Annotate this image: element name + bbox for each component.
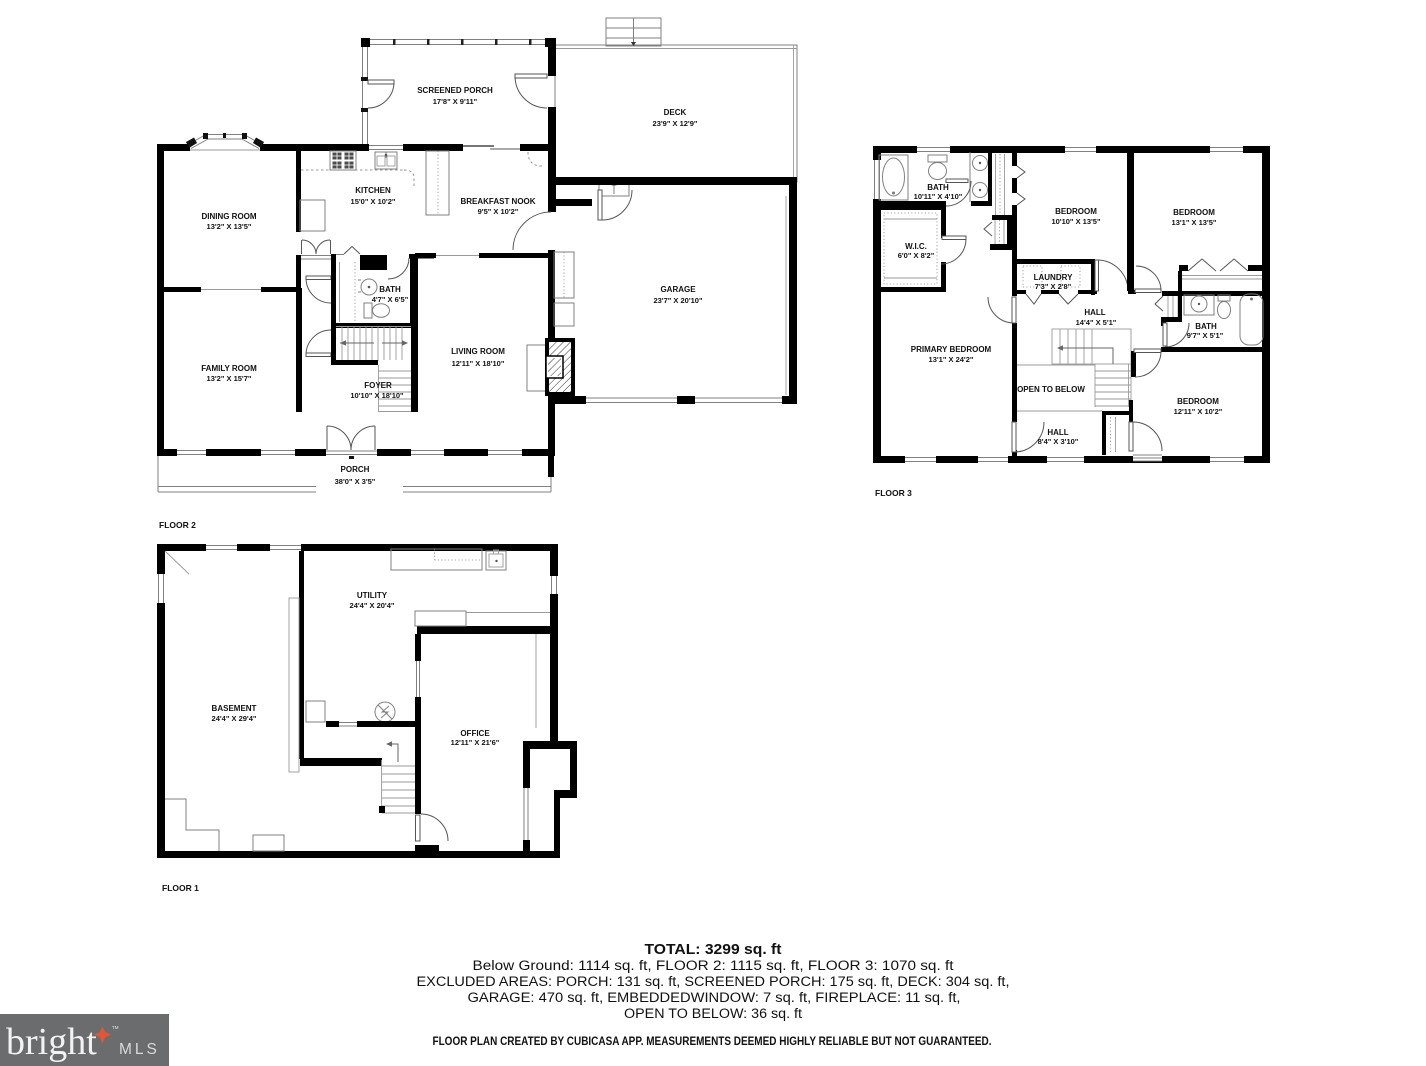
svg-text:FOYER: FOYER xyxy=(364,381,392,390)
svg-text:BEDROOM: BEDROOM xyxy=(1177,397,1219,406)
svg-text:13'1" X 24'2": 13'1" X 24'2" xyxy=(929,355,974,364)
svg-text:UTILITY: UTILITY xyxy=(357,591,388,600)
svg-text:15'0" X 10'2": 15'0" X 10'2" xyxy=(351,197,396,206)
svg-text:10'10" X 13'5": 10'10" X 13'5" xyxy=(1051,217,1100,226)
svg-text:OPEN TO BELOW: OPEN TO BELOW xyxy=(1017,385,1085,394)
svg-text:OFFICE: OFFICE xyxy=(460,729,490,738)
svg-text:23'9" X 12'9": 23'9" X 12'9" xyxy=(653,119,698,128)
svg-text:MLS: MLS xyxy=(119,1041,160,1058)
svg-text:10'10" X 18'10": 10'10" X 18'10" xyxy=(350,391,404,400)
svg-text:38'0" X 3'5": 38'0" X 3'5" xyxy=(335,477,376,486)
svg-text:7'3" X 2'8": 7'3" X 2'8" xyxy=(1035,282,1072,291)
svg-text:TOTAL: 3299 sq. ft: TOTAL: 3299 sq. ft xyxy=(645,941,782,958)
svg-text:PRIMARY BEDROOM: PRIMARY BEDROOM xyxy=(911,345,992,354)
svg-text:12'11" X 21'6": 12'11" X 21'6" xyxy=(451,738,500,747)
svg-text:BATH: BATH xyxy=(927,183,949,192)
svg-text:4'7" X 6'5": 4'7" X 6'5" xyxy=(372,295,409,304)
svg-text:SCREENED PORCH: SCREENED PORCH xyxy=(417,86,493,95)
svg-text:FLOOR PLAN CREATED BY CUBICASA: FLOOR PLAN CREATED BY CUBICASA APP. MEAS… xyxy=(433,1036,992,1048)
svg-text:23'7" X 20'10": 23'7" X 20'10" xyxy=(653,296,702,305)
svg-text:10'11" X 4'10": 10'11" X 4'10" xyxy=(914,192,963,201)
svg-text:DECK: DECK xyxy=(664,108,687,117)
svg-text:W.I.C.: W.I.C. xyxy=(905,242,927,251)
svg-text:KITCHEN: KITCHEN xyxy=(355,186,391,195)
svg-text:Below Ground: 1114 sq. ft, FLO: Below Ground: 1114 sq. ft, FLOOR 2: 1115… xyxy=(473,958,954,973)
svg-text:FLOOR 2: FLOOR 2 xyxy=(159,520,196,530)
svg-text:BASEMENT: BASEMENT xyxy=(212,704,257,713)
svg-text:13'2" X 15'7": 13'2" X 15'7" xyxy=(207,374,252,383)
svg-text:GARAGE: 470 sq. ft, EMBEDDEDWI: GARAGE: 470 sq. ft, EMBEDDEDWINDOW: 7 sq… xyxy=(468,990,961,1005)
svg-text:GARAGE: GARAGE xyxy=(660,285,696,294)
svg-text:BEDROOM: BEDROOM xyxy=(1055,207,1097,216)
svg-text:BEDROOM: BEDROOM xyxy=(1173,208,1215,217)
svg-text:TM: TM xyxy=(112,1025,119,1030)
svg-text:17'8" X 9'11": 17'8" X 9'11" xyxy=(433,97,478,106)
svg-text:LAUNDRY: LAUNDRY xyxy=(1034,273,1073,282)
svg-text:bright: bright xyxy=(6,1021,97,1063)
svg-text:9'5" X 10'2": 9'5" X 10'2" xyxy=(478,207,519,216)
svg-text:BATH: BATH xyxy=(1195,322,1217,331)
svg-text:FAMILY ROOM: FAMILY ROOM xyxy=(201,364,257,373)
svg-text:OPEN TO BELOW: 36 sq. ft: OPEN TO BELOW: 36 sq. ft xyxy=(624,1006,802,1021)
svg-text:DINING ROOM: DINING ROOM xyxy=(201,212,256,221)
svg-text:24'4" X 29'4": 24'4" X 29'4" xyxy=(212,714,257,723)
svg-text:HALL: HALL xyxy=(1084,308,1105,317)
svg-text:PORCH: PORCH xyxy=(341,465,370,474)
svg-text:FLOOR 1: FLOOR 1 xyxy=(162,883,199,893)
svg-text:FLOOR 3: FLOOR 3 xyxy=(875,488,912,498)
svg-text:13'1" X 13'5": 13'1" X 13'5" xyxy=(1172,218,1217,227)
svg-text:HALL: HALL xyxy=(1047,428,1068,437)
svg-text:12'11" X 10'2": 12'11" X 10'2" xyxy=(1174,407,1223,416)
svg-text:EXCLUDED AREAS: PORCH: 131 sq.: EXCLUDED AREAS: PORCH: 131 sq. ft, SCREE… xyxy=(417,974,1010,989)
svg-text:9'7" X 5'1": 9'7" X 5'1" xyxy=(1187,331,1224,340)
svg-text:BATH: BATH xyxy=(379,285,401,294)
svg-text:BREAKFAST NOOK: BREAKFAST NOOK xyxy=(460,197,535,206)
svg-text:8'4" X 3'10": 8'4" X 3'10" xyxy=(1038,437,1079,446)
svg-text:14'4" X 5'1": 14'4" X 5'1" xyxy=(1076,318,1117,327)
svg-text:12'11" X 18'10": 12'11" X 18'10" xyxy=(452,359,505,368)
svg-text:LIVING ROOM: LIVING ROOM xyxy=(451,347,505,356)
svg-text:6'0" X 8'2": 6'0" X 8'2" xyxy=(898,251,935,260)
svg-text:13'2" X 13'5": 13'2" X 13'5" xyxy=(207,222,252,231)
svg-text:24'4" X 20'4": 24'4" X 20'4" xyxy=(350,601,395,610)
